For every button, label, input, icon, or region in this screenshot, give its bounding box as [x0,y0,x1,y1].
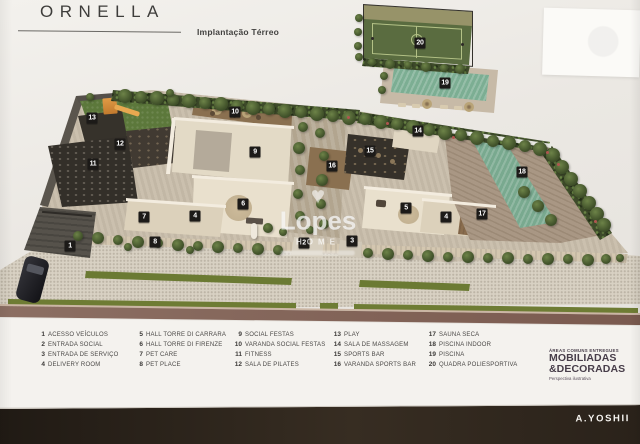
legend-column-4: 13PLAY14SALA DE MASSAGEM15SPORTS BAR16VA… [327,331,416,371]
legend-number: 7 [129,351,143,358]
tree-icon [423,124,435,136]
tree-icon [199,97,211,109]
plan-marker-1: 1 [65,241,76,252]
legend-label: PISCINA INDOOR [439,342,491,348]
legend-item-18: 18PISCINA INDOOR [422,341,517,351]
page-title: ORNELLA [40,2,165,22]
plan-marker-13: 13 [87,113,98,124]
tree-icon [310,107,324,121]
basket-hoop-icon [371,37,374,40]
legend-number: 17 [422,331,436,338]
tree-icon [279,228,287,236]
tree-icon [124,243,132,251]
legend-label: DELIVERY ROOM [48,362,100,368]
tree-icon [263,103,275,115]
tree-icon [533,142,547,156]
tree-icon [616,254,624,262]
tree-icon [438,126,452,140]
tree-icon [380,72,388,80]
umbrella-icon [464,102,474,112]
tree-icon [182,94,196,108]
tree-icon [378,86,386,94]
tree-icon [359,113,371,125]
tree-icon [545,214,557,226]
tree-icon [502,136,516,150]
legend-number: 5 [129,331,143,338]
legend-label: HALL TORRE DI CARRARA [146,332,226,338]
plan-marker-11: 11 [88,159,99,170]
tree-icon [462,251,474,263]
table-icon [376,153,381,158]
legend-item-9: 9SOCIAL FESTAS [228,331,325,341]
tree-icon [354,28,362,36]
tree-icon [73,231,83,241]
legend-column-1: 1ACESSO VEÍCULOS2ENTRADA SOCIAL3ENTRADA … [31,331,119,371]
legend-number: 19 [422,351,436,358]
lounger-icon [454,106,462,110]
legend-number: 16 [327,361,341,368]
tree-icon [403,250,413,260]
tree-icon [319,219,329,229]
tree-icon [404,61,412,69]
plan-marker-12: 12 [115,139,126,150]
legend-number: 12 [228,361,242,368]
tree-icon [295,211,305,221]
legend-label: VARANDA SOCIAL FESTAS [245,342,325,348]
legend-item-17: 17SAUNA SECA [422,331,517,341]
tree-icon [368,58,376,66]
tree-icon [315,128,325,138]
footer-bar: A.YOSHII [0,404,640,444]
legend-number: 13 [327,331,341,338]
tree-icon [363,248,373,258]
legend-label: SAUNA SECA [439,332,479,338]
legend-item-8: 8PET PLACE [129,361,226,371]
plan-marker-7: 7 [139,212,150,223]
lounger-icon [440,105,448,109]
tree-icon [483,253,493,263]
legend-number: 20 [422,361,436,368]
tree-icon [295,165,305,175]
tree-icon [166,89,174,97]
tree-icon [354,42,362,50]
tree-icon [263,223,273,233]
flower-icon [546,151,549,154]
tree-icon [319,151,329,161]
legend-label: QUADRA POLIESPORTIVA [439,362,517,368]
legend-label: PET PLACE [146,362,181,368]
tree-icon [246,101,260,115]
tree-icon [523,254,533,264]
tree-icon [382,248,394,260]
umbrella-icon [422,99,432,109]
tree-icon [355,14,363,22]
tree-icon [355,53,363,61]
legend-label: ENTRADA DE SERVIÇO [48,352,119,358]
tree-icon [233,243,243,253]
legend-item-1: 1ACESSO VEÍCULOS [31,331,119,341]
page-subtitle: Implantação Térreo [197,27,279,37]
legend-number: 14 [327,341,341,348]
furnished-badge: ÁREAS COMUNS ENTREGUES MOBILIADAS &DECOR… [549,348,627,381]
tree-icon [278,104,292,118]
tree-icon [212,241,224,253]
tree-icon [421,62,431,72]
legend-number: 2 [31,341,45,348]
flower-icon [594,220,597,223]
legend-number: 18 [422,341,436,348]
tree-icon [519,140,531,152]
tree-icon [518,186,530,198]
tree-icon [293,142,305,154]
legend-item-15: 15SPORTS BAR [327,351,416,361]
tree-icon [391,118,403,130]
plan-marker-5: 5 [401,203,412,214]
flower-icon [452,136,455,139]
table-icon [210,111,215,116]
legend-item-13: 13PLAY [327,331,416,341]
tree-icon [327,110,339,122]
car-windshield [26,263,44,275]
legend-label: VARANDA SPORTS BAR [344,362,416,368]
flower-icon [386,122,389,125]
legend-item-11: 11FITNESS [228,351,325,361]
legend-number: 1 [31,331,45,338]
plan-marker-14: 14 [413,126,424,137]
plan-marker-17: 17 [477,209,488,220]
legend-item-16: 16VARANDA SPORTS BAR [327,361,416,371]
lounger-icon [412,104,420,108]
tree-icon [582,254,594,266]
plan-marker-18: 18 [517,167,528,178]
table-icon [256,115,261,120]
tree-icon [293,189,303,199]
legend-item-6: 6HALL TORRE DI FIRENZE [129,341,226,351]
legend-item-2: 2ENTRADA SOCIAL [31,341,119,351]
table-icon [358,148,363,153]
tree-icon [316,199,326,209]
basket-hoop-icon [461,43,464,46]
plan-marker-16: 16 [327,161,338,172]
badge-line-big: &DECORADAS [549,364,627,375]
tree-icon [470,131,484,145]
table-icon [390,159,395,164]
tree-icon [118,89,132,103]
tree-icon [132,236,144,248]
lounger-icon [398,103,406,107]
legend-label: SALA DE MASSAGEM [344,342,409,348]
legend-label: SPORTS BAR [344,352,385,358]
tree-icon [601,254,611,264]
legend-item-10: 10VARANDA SOCIAL FESTAS [228,341,325,351]
flower-icon [557,163,560,166]
developer-logo: A.YOSHII [575,413,630,424]
tree-icon [316,174,328,186]
plan-marker-2: 2 [299,238,310,249]
tree-icon [422,250,434,262]
legend-item-5: 5HALL TORRE DI CARRARA [129,331,226,341]
legend-item-12: 12SALA DE PILATES [228,361,325,371]
tree-icon [532,200,544,212]
legend-number: 8 [129,361,143,368]
tree-icon [252,243,264,255]
plan-marker-15: 15 [365,146,376,157]
legend-label: HALL TORRE DI FIRENZE [146,342,222,348]
tree-icon [214,97,228,111]
tree-icon [172,239,184,251]
legend-label: PLAY [344,332,360,338]
plan-marker-9: 9 [250,147,261,158]
legend-label: PET CARE [146,352,178,358]
plan-marker-8: 8 [150,237,161,248]
legend-item-14: 14SALA DE MASSAGEM [327,341,416,351]
tree-icon [487,135,499,147]
plan-marker-4: 4 [190,211,201,222]
legend-number: 3 [31,351,45,358]
legend-number: 6 [129,341,143,348]
legend-number: 10 [228,341,242,348]
legend-number: 15 [327,351,341,358]
tree-icon [455,129,467,141]
tree-icon [306,226,314,234]
plan-marker-6: 6 [238,199,249,210]
tree-icon [295,106,307,118]
legend-item-19: 19PISCINA [422,351,517,361]
tree-icon [563,254,573,264]
tree-icon [193,241,203,251]
plan-marker-20: 20 [415,38,426,49]
legend-column-3: 9SOCIAL FESTAS10VARANDA SOCIAL FESTAS11F… [228,331,325,371]
plan-marker-4: 4 [441,212,452,223]
legend-number: 4 [31,361,45,368]
legend-label: ENTRADA SOCIAL [48,342,103,348]
table-icon [376,200,386,208]
legend-item-7: 7PET CARE [129,351,226,361]
tree-icon [597,218,611,232]
tree-icon [135,91,147,103]
tree-icon [186,246,194,254]
plan-marker-19: 19 [440,78,451,89]
plan-marker-10: 10 [230,107,241,118]
statue-icon [251,223,257,239]
tree-icon [440,64,448,72]
plan-marker-3: 3 [347,236,358,247]
tree-icon [443,252,453,262]
badge-line-small: Perspectiva ilustrativa [549,376,627,381]
legend-label: PISCINA [439,352,464,358]
legend-label: ACESSO VEÍCULOS [48,332,108,338]
legend-column-5: 17SAUNA SECA18PISCINA INDOOR19PISCINA20Q… [422,331,517,371]
tree-icon [298,122,308,132]
tree-icon [273,245,283,255]
legend-label: SALA DE PILATES [245,362,299,368]
legend-label: SOCIAL FESTAS [245,332,294,338]
legend-item-4: 4DELIVERY ROOM [31,361,119,371]
blank-card [542,8,640,78]
tree-icon [385,59,395,69]
tree-icon [542,253,554,265]
tree-icon [113,235,123,245]
legend-column-2: 5HALL TORRE DI CARRARA6HALL TORRE DI FIR… [129,331,226,371]
legend-label: FITNESS [245,352,272,358]
tree-icon [92,232,104,244]
legend-item-3: 3ENTRADA DE SERVIÇO [31,351,119,361]
tree-icon [455,64,465,74]
flower-icon [347,116,350,119]
legend-number: 11 [228,351,242,358]
tree-icon [502,252,514,264]
tree-icon [150,91,164,105]
legend-number: 9 [228,331,242,338]
brochure-page: ORNELLA Implantação Térreo [0,0,640,444]
tree-icon [86,93,94,101]
legend-item-20: 20QUADRA POLIESPORTIVA [422,361,517,371]
